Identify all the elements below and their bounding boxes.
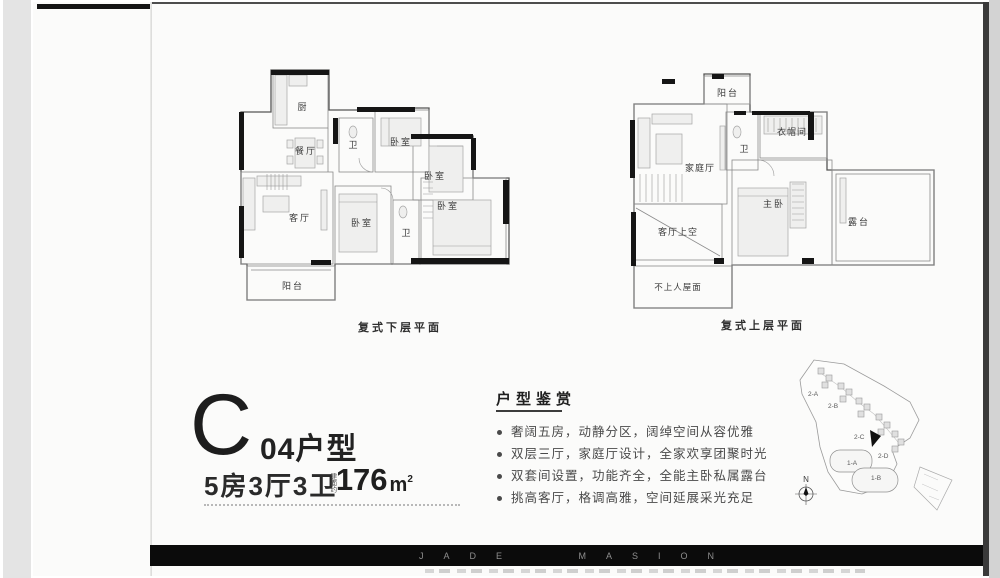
- fine-print-illegible: [425, 569, 865, 573]
- room-label-family: 家庭厅: [685, 162, 715, 173]
- room-label-bed4: 卧室: [437, 200, 459, 211]
- page-top-rule: [152, 2, 983, 4]
- room-label-void: 客厅上空: [658, 226, 698, 237]
- room-label-bed2: 卧室: [424, 170, 446, 181]
- feature-text: 奢阔五房，动静分区，阔绰空间从容优雅: [511, 425, 754, 439]
- bullet-dot-icon: [497, 430, 502, 435]
- feature-text: 双套间设置，功能齐全，全能主卧私属露台: [511, 469, 768, 483]
- feature-text: 双层三厅，家庭厅设计，全家欢享团聚时光: [511, 447, 768, 461]
- room-label-living: 客厅: [289, 212, 311, 223]
- footer-watermark-bar: JADE MASION: [150, 545, 983, 566]
- block-label-1a: 1-A: [847, 460, 858, 467]
- unit-spec: 5房3厅3卫: [204, 466, 337, 503]
- room-label-bed1: 卧室: [390, 136, 412, 147]
- room-label-roof: 不上人屋面: [654, 282, 702, 292]
- fold-line: [150, 2, 152, 576]
- room-label-dining: 餐厅: [295, 145, 317, 156]
- feature-text: 挑高客厅，格调高雅，空间延展采光充足: [511, 491, 754, 505]
- block-label-2b: 2-B: [828, 403, 838, 410]
- unit-area: 建面约 176 m2: [328, 464, 413, 495]
- caption-upper-plan: 复式上层平面: [663, 317, 863, 333]
- area-superscript: 2: [407, 474, 413, 485]
- feature-bullet: 双套间设置，功能齐全，全能主卧私属露台: [496, 470, 768, 483]
- compass-icon: N: [795, 475, 817, 505]
- block-label-1b: 1-B: [871, 475, 881, 482]
- left-margin-strip: [3, 0, 31, 578]
- block-label-2c: 2-C: [854, 434, 865, 441]
- room-label-terrace: 露台: [848, 216, 870, 227]
- bullet-dot-icon: [497, 452, 502, 457]
- brochure-page: 厨 餐厅 卫 卧室 卧室 客厅 卧室 卫 卧室 阳台 复式下层平面: [0, 0, 1000, 578]
- room-label-master: 主卧: [763, 198, 785, 209]
- features-title: 户型鉴赏: [496, 388, 576, 409]
- area-unit: m2: [390, 475, 413, 495]
- floorplan-upper: 阳台 衣帽间 卫 家庭厅 主卧 露台 客厅上空 不上人屋面: [622, 70, 940, 310]
- room-label-balcony-lower: 阳台: [282, 280, 304, 291]
- top-left-black-bar: [37, 4, 152, 9]
- lower-furniture: [243, 75, 491, 255]
- room-label-bath2: 卫: [401, 228, 410, 238]
- dashed-separator: [204, 504, 460, 506]
- block-label-2a: 2-A: [808, 391, 819, 398]
- room-label-bed3: 卧室: [351, 217, 373, 228]
- feature-bullet: 奢阔五房，动静分区，阔绰空间从容优雅: [496, 426, 768, 439]
- room-label-bath1: 卫: [348, 140, 357, 150]
- bullet-dot-icon: [497, 474, 502, 479]
- floorplan-lower: 厨 餐厅 卫 卧室 卧室 客厅 卧室 卫 卧室 阳台: [233, 60, 528, 312]
- compass-north-label: N: [803, 475, 809, 484]
- unit-letter: C: [190, 382, 252, 468]
- area-prefix: 建面约: [328, 473, 335, 493]
- annex-lines: [922, 474, 939, 500]
- room-label-kitchen: 厨: [297, 102, 306, 112]
- area-value: 176: [336, 464, 388, 495]
- caption-lower-plan: 复式下层平面: [300, 319, 500, 335]
- outer-right-strip: [989, 0, 1000, 578]
- block-label-2d: 2-D: [878, 453, 889, 460]
- room-label-balcony-upper: 阳台: [717, 87, 739, 98]
- features-list: 奢阔五房，动静分区，阔绰空间从容优雅 双层三厅，家庭厅设计，全家欢享团聚时光 双…: [496, 426, 768, 514]
- site-annex-parcel: [914, 467, 952, 510]
- footer-watermark-text: JADE MASION: [399, 551, 734, 561]
- site-plan: 2-A 2-B 2-C 2-D 1-A 1-B N: [792, 352, 988, 522]
- feature-bullet: 双层三厅，家庭厅设计，全家欢享团聚时光: [496, 448, 768, 461]
- feature-bullet: 挑高客厅，格调高雅，空间延展采光充足: [496, 492, 768, 505]
- room-label-closet: 衣帽间: [777, 126, 807, 137]
- features-underline: [496, 410, 562, 412]
- room-label-bath-upper: 卫: [739, 144, 748, 154]
- bullet-dot-icon: [497, 496, 502, 501]
